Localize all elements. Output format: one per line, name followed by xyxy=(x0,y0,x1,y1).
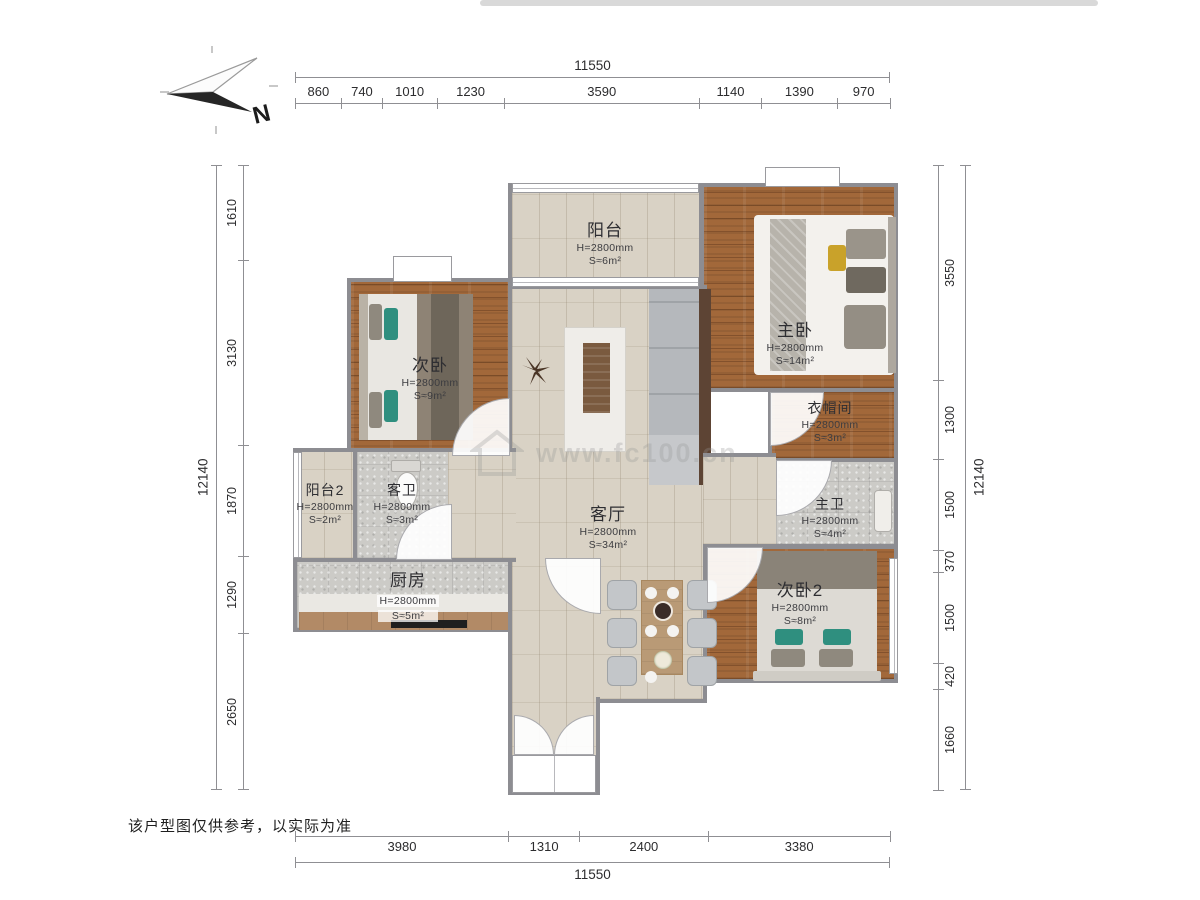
dim-segment-label: 1660 xyxy=(943,726,957,754)
tv xyxy=(583,343,610,413)
master-bed-frame xyxy=(888,217,896,373)
dim-segment-label: 1300 xyxy=(943,406,957,434)
dim-segment-label: 3550 xyxy=(943,259,957,287)
north-compass: N xyxy=(160,46,278,139)
dim-top-total-line xyxy=(295,77,890,78)
compass-needle-dark xyxy=(167,92,252,112)
bedroom2-pillow-gray xyxy=(771,649,805,667)
watermark-url: www.fc100.cn xyxy=(536,438,738,469)
plate xyxy=(645,625,657,637)
dim-bottom-total: 11550 xyxy=(295,867,890,882)
dim-segment-label: 2650 xyxy=(225,698,239,726)
watermark-house-icon xyxy=(470,426,524,480)
room-name: 阳台 xyxy=(535,216,675,241)
bedroom2-pillow-gray xyxy=(819,649,853,667)
bedroom-pillow-teal xyxy=(384,308,398,340)
plant-decor xyxy=(520,355,552,387)
label-balcony: 阳台 H=2800mm S≈6m² xyxy=(535,216,675,267)
dim-left-total: 12140 xyxy=(194,165,212,790)
room-area: S≈34m² xyxy=(538,539,678,551)
room-ceiling: H=2800mm xyxy=(538,526,678,538)
room-name: 客厅 xyxy=(538,500,678,525)
bedroom2-pillow-green xyxy=(775,629,803,645)
dining-chair xyxy=(687,618,717,648)
room-ceiling: H=2800mm xyxy=(377,595,440,607)
dim-segment-label: 1500 xyxy=(943,491,957,519)
plate xyxy=(667,625,679,637)
label-kitchen: 厨房 H=2800mm S≈5m² xyxy=(338,566,478,622)
room-area: S≈4m² xyxy=(760,528,900,540)
room-ceiling: H=2800mm xyxy=(360,377,500,389)
room-name: 厨房 xyxy=(338,566,478,591)
dim-segment: 1290 xyxy=(221,557,243,633)
dim-segment: 1140 xyxy=(699,82,761,103)
dim-segment: 1500 xyxy=(939,459,961,550)
room-name: 次卧2 xyxy=(730,576,870,601)
dim-segment-label: 420 xyxy=(943,666,957,687)
dim-segment: 1390 xyxy=(762,82,838,103)
disclaimer-text: 该户型图仅供参考，以实际为准 xyxy=(128,815,352,836)
bedroom2-pillow-green xyxy=(823,629,851,645)
flower-vase xyxy=(654,651,672,669)
room-area: S≈9m² xyxy=(360,390,500,402)
dimension-chain-bottom: 3980131024003380 11550 xyxy=(295,836,890,882)
dim-right-total-line xyxy=(965,165,966,790)
dining-chair xyxy=(687,656,717,686)
dim-segment: 370 xyxy=(939,550,961,572)
dim-bottom-total-line xyxy=(295,862,890,863)
room-area: S≈3m² xyxy=(352,514,452,526)
room-living xyxy=(508,285,707,703)
dining-chair xyxy=(607,656,637,686)
compass-north-label: N xyxy=(250,99,273,129)
room-ceiling: H=2800mm xyxy=(760,515,900,527)
dim-segment-label: 3130 xyxy=(225,339,239,367)
label-bedroom2: 次卧2 H=2800mm S≈8m² xyxy=(730,576,870,627)
toilet-tank xyxy=(391,460,421,472)
room-name: 次卧 xyxy=(360,351,500,376)
floor-plan-page: N 11550 86074010101230359011401390970 39… xyxy=(0,0,1200,900)
dim-segment: 740 xyxy=(342,82,382,103)
room-name: 客卫 xyxy=(352,480,452,500)
dim-segment: 1660 xyxy=(939,689,961,790)
dim-segment: 1610 xyxy=(221,165,243,260)
dimension-chain-left: 12140 16103130187012902650 xyxy=(194,165,244,790)
dining-chair xyxy=(607,618,637,648)
dim-segment-label: 370 xyxy=(943,551,957,572)
plate xyxy=(645,587,657,599)
bedroom-window xyxy=(393,256,452,282)
room-area: S≈6m² xyxy=(535,255,675,267)
dim-segment-label: 1870 xyxy=(225,487,239,515)
label-cloakroom: 衣帽间 H=2800mm S≈3m² xyxy=(760,398,900,444)
dim-segment: 3130 xyxy=(221,260,243,445)
floor-plan: www.fc100.cn 阳台 H=2800mm S≈6m² 主卧 H=2800… xyxy=(290,158,902,806)
dining-table xyxy=(641,580,683,675)
room-name: 衣帽间 xyxy=(760,398,900,418)
bedroom-pillow-gray xyxy=(369,304,382,340)
room-name: 主卧 xyxy=(725,316,865,341)
master-pillow xyxy=(846,229,886,259)
dim-segment-label: 1500 xyxy=(943,604,957,632)
label-living: 客厅 H=2800mm S≈34m² xyxy=(538,500,678,551)
master-window xyxy=(765,167,840,187)
plate xyxy=(667,587,679,599)
dim-segment: 1870 xyxy=(221,446,243,557)
label-master-bath: 主卫 H=2800mm S≈4m² xyxy=(760,494,900,540)
bedroom2-footboard xyxy=(753,671,881,681)
dim-right-segments: 35501300150037015004201660 xyxy=(938,165,961,790)
dim-segment: 3590 xyxy=(504,82,699,103)
plate xyxy=(645,671,657,683)
dim-segment: 970 xyxy=(837,82,890,103)
dim-left-total-line xyxy=(216,165,217,790)
bedroom2-window xyxy=(889,558,898,674)
room-area: S≈8m² xyxy=(730,615,870,627)
balcony-window xyxy=(512,183,699,193)
dim-segment: 1010 xyxy=(382,82,437,103)
dimension-chain-top: 11550 86074010101230359011401390970 xyxy=(295,58,890,104)
room-ceiling: H=2800mm xyxy=(760,419,900,431)
room-area: S≈14m² xyxy=(725,355,865,367)
dim-bottom-segments: 3980131024003380 xyxy=(295,836,890,858)
dim-segment: 3980 xyxy=(295,837,509,858)
dim-left-segments: 16103130187012902650 xyxy=(221,165,244,790)
centerpiece xyxy=(655,603,671,619)
dim-segment-label: 1290 xyxy=(225,581,239,609)
dim-segment-label: 1610 xyxy=(225,199,239,227)
dim-top-segments: 86074010101230359011401390970 xyxy=(295,82,890,104)
dim-segment: 1500 xyxy=(939,573,961,664)
dim-segment: 420 xyxy=(939,664,961,689)
dim-top-total: 11550 xyxy=(295,58,890,73)
room-area: S≈3m² xyxy=(760,432,900,444)
dim-segment: 1300 xyxy=(939,380,961,459)
room-ceiling: H=2800mm xyxy=(352,501,452,513)
dim-segment: 2400 xyxy=(579,837,708,858)
label-guest-bath: 客卫 H=2800mm S≈3m² xyxy=(352,480,452,526)
dim-segment: 1310 xyxy=(509,837,579,858)
room-ceiling: H=2800mm xyxy=(730,602,870,614)
watermark: www.fc100.cn xyxy=(470,426,738,480)
dim-segment: 1230 xyxy=(437,82,504,103)
compass-needle-white xyxy=(167,58,257,94)
dim-segment: 3380 xyxy=(708,837,890,858)
dim-right-total: 12140 xyxy=(970,165,988,790)
room-ceiling: H=2800mm xyxy=(725,342,865,354)
dim-segment: 860 xyxy=(295,82,342,103)
label-master: 主卧 H=2800mm S≈14m² xyxy=(725,316,865,367)
dim-segment: 3550 xyxy=(939,165,961,380)
dimension-chain-right: 35501300150037015004201660 12140 xyxy=(938,165,988,790)
master-pillow-dark xyxy=(846,267,886,293)
dim-segment: 2650 xyxy=(221,633,243,790)
entry-door xyxy=(512,755,596,793)
balcony-sliding-door xyxy=(512,277,699,287)
label-bedroom: 次卧 H=2800mm S≈9m² xyxy=(360,351,500,402)
room-ceiling: H=2800mm xyxy=(535,242,675,254)
dining-chair xyxy=(607,580,637,610)
room-area: S≈5m² xyxy=(378,610,438,622)
room-name: 主卫 xyxy=(760,494,900,514)
top-scrollbar[interactable] xyxy=(480,0,1098,6)
master-pillow-yellow xyxy=(828,245,846,271)
